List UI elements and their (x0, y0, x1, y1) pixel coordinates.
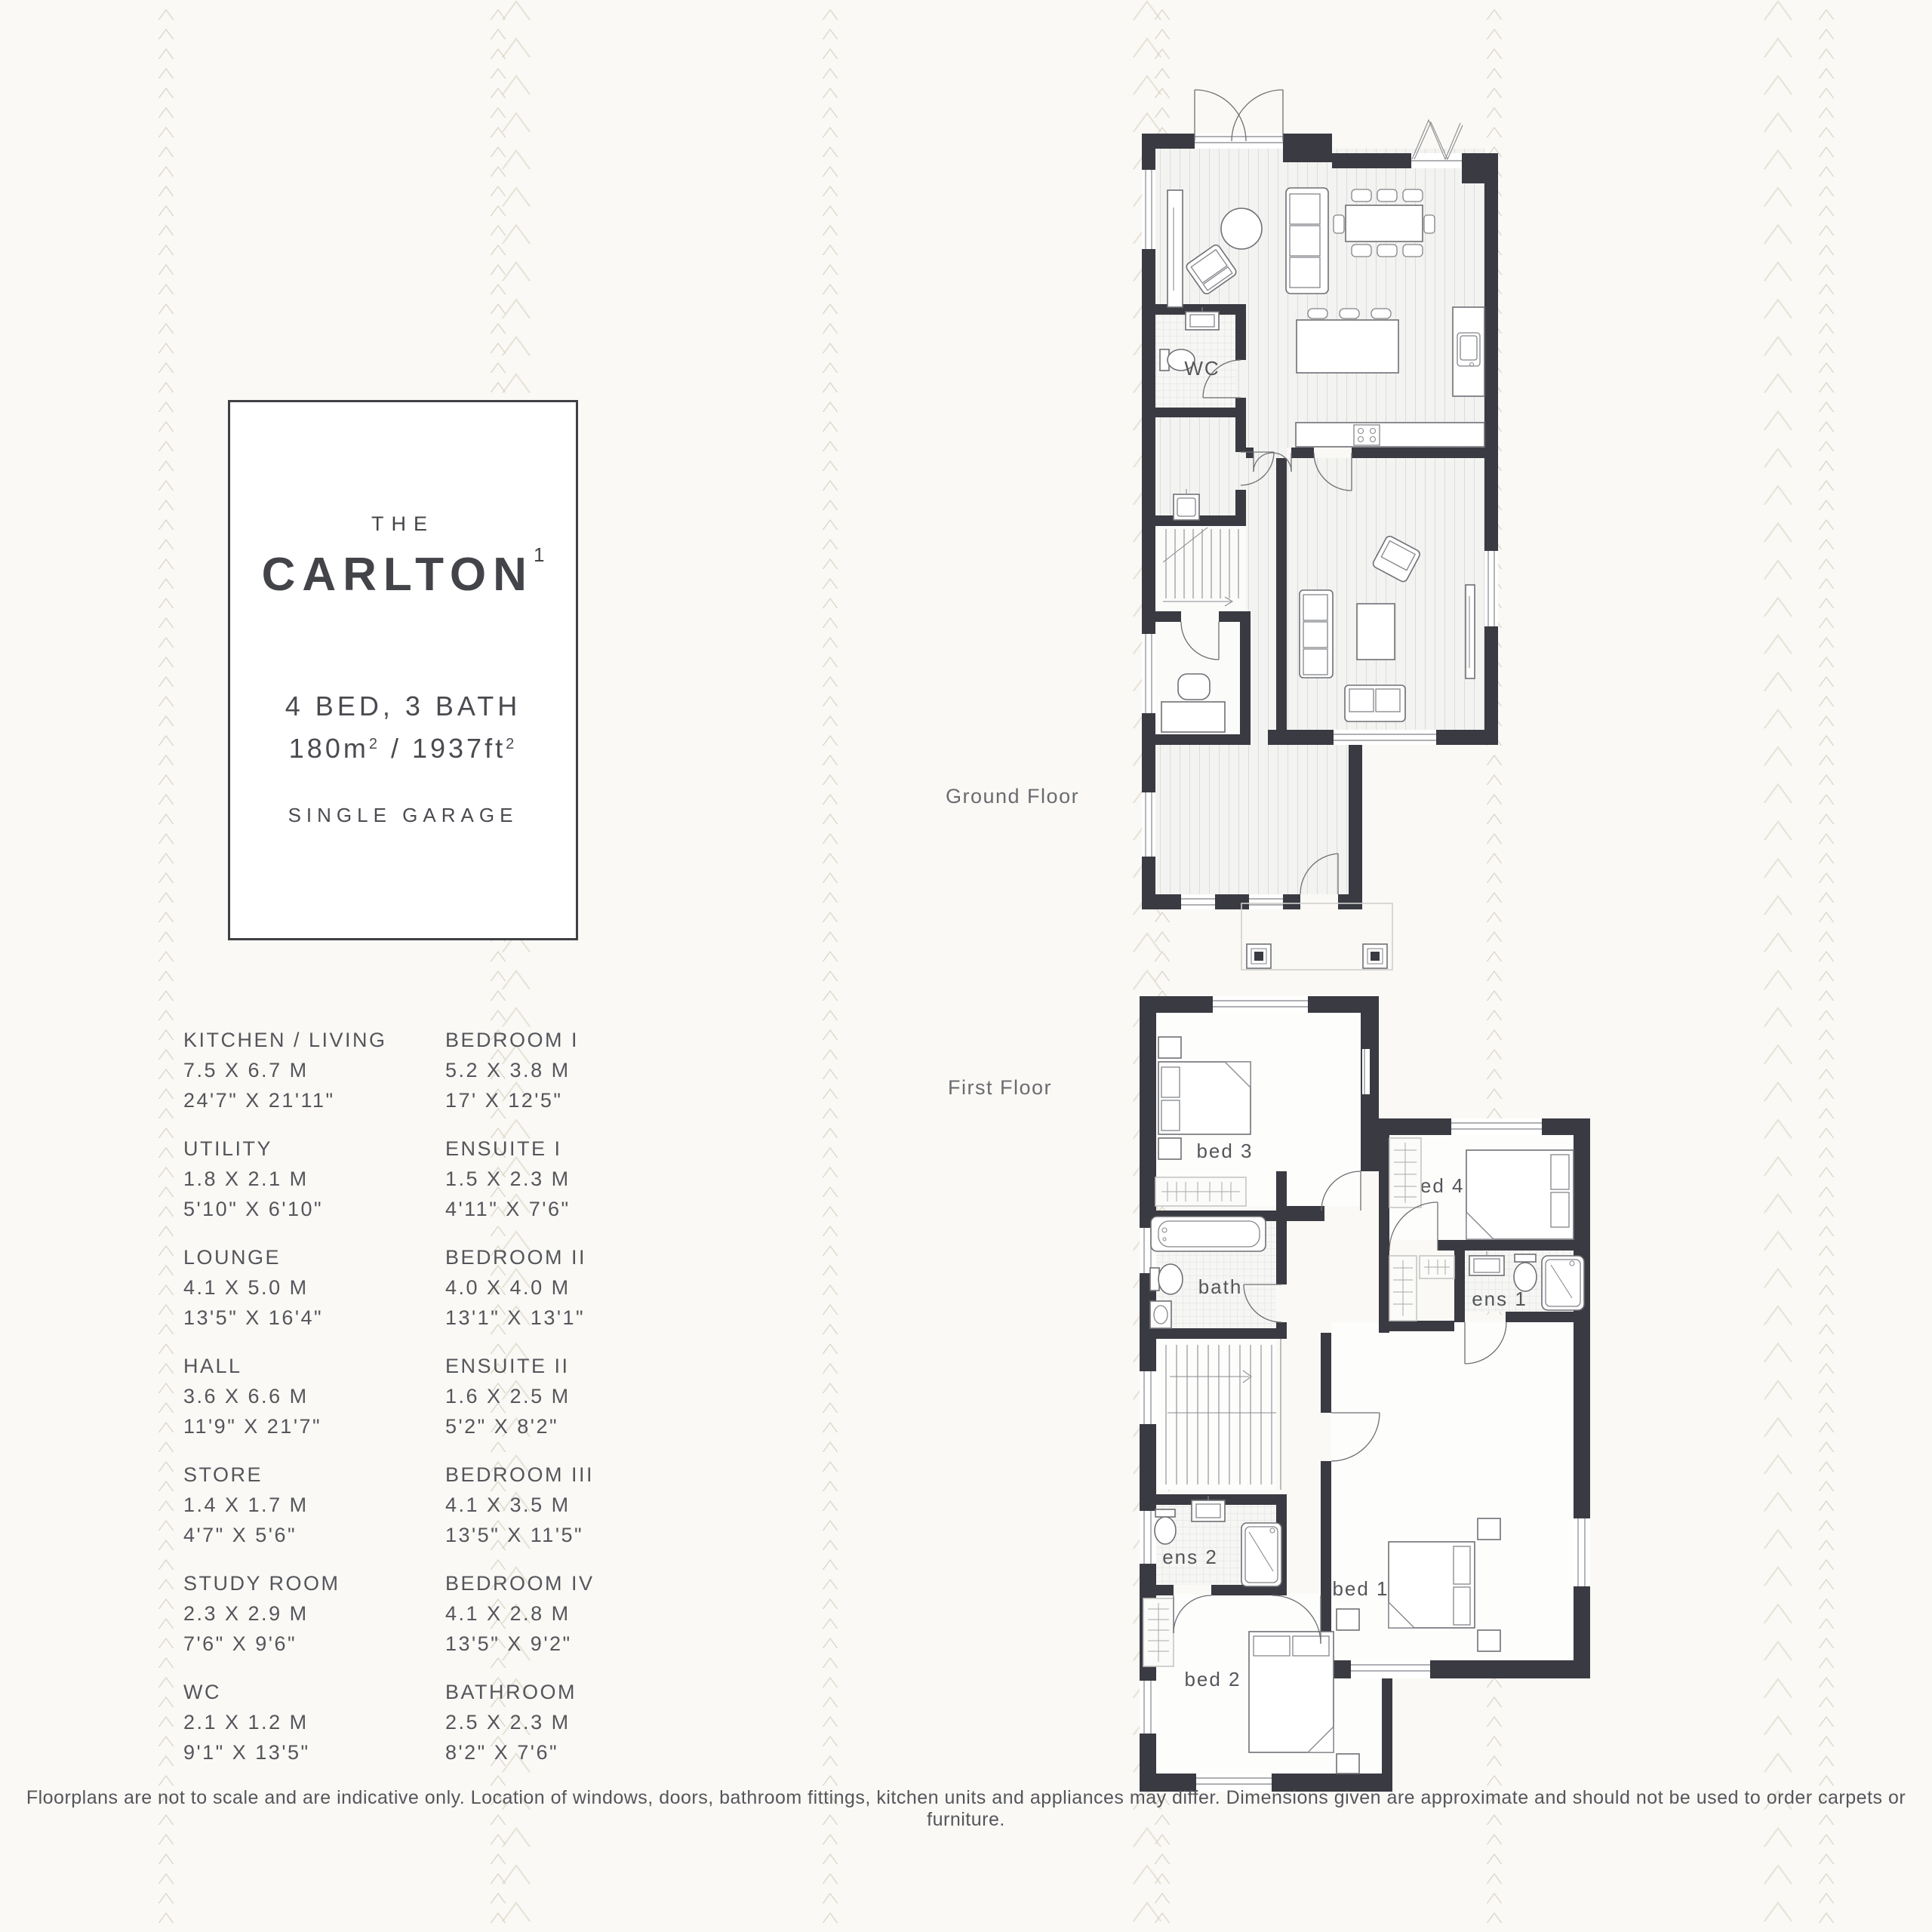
room-metric: 4.1 X 2.8 M (445, 1598, 702, 1629)
wc-room-label: WC (1184, 357, 1220, 380)
room-entry-kitchen-living: KITCHEN / LIVING 7.5 X 6.7 M 24'7" X 21'… (183, 1025, 440, 1115)
room-metric: 4.1 X 5.0 M (183, 1272, 440, 1303)
ens2-room-label: ens 2 (1162, 1546, 1218, 1568)
room-imperial: 24'7" X 21'11" (183, 1085, 440, 1115)
room-name: BEDROOM I (445, 1025, 702, 1055)
room-entry-wc: WC 2.1 X 1.2 M 9'1" X 13'5" (183, 1677, 440, 1767)
room-imperial: 4'7" X 5'6" (183, 1520, 440, 1550)
room-metric: 2.1 X 1.2 M (183, 1707, 440, 1737)
kitchen-island-icon (1297, 309, 1398, 373)
room-entry-lounge: LOUNGE 4.1 X 5.0 M 13'5" X 16'4" (183, 1242, 440, 1333)
house-name: CARLTON1 (230, 543, 576, 601)
room-entry-study: STUDY ROOM 2.3 X 2.9 M 7'6" X 9'6" (183, 1568, 440, 1659)
closet-icon (1389, 1256, 1417, 1321)
room-metric: 2.3 X 2.9 M (183, 1598, 440, 1629)
room-name: WC (183, 1677, 440, 1707)
room-metric: 1.5 X 2.3 M (445, 1164, 702, 1194)
room-entry-bedroom1: BEDROOM I 5.2 X 3.8 M 17' X 12'5" (445, 1025, 702, 1115)
room-metric: 1.6 X 2.5 M (445, 1381, 702, 1411)
sink-icon (1150, 1301, 1171, 1328)
room-name: ENSUITE I (445, 1134, 702, 1164)
room-metric: 3.6 X 6.6 M (183, 1381, 440, 1411)
room-imperial: 4'11" X 7'6" (445, 1194, 702, 1224)
room-imperial: 5'10" X 6'10" (183, 1194, 440, 1224)
room-metric: 1.8 X 2.1 M (183, 1164, 440, 1194)
bathtub-icon (1151, 1217, 1266, 1251)
room-name: BEDROOM IV (445, 1568, 702, 1598)
garage-spec: SINGLE GARAGE (230, 804, 576, 827)
sofa-icon (1286, 188, 1328, 294)
media-unit-icon (1466, 585, 1475, 678)
room-imperial: 8'2" X 7'6" (445, 1737, 702, 1767)
room-name: UTILITY (183, 1134, 440, 1164)
shower-icon (1241, 1523, 1281, 1586)
room-metric: 2.5 X 2.3 M (445, 1707, 702, 1737)
room-imperial: 5'2" X 8'2" (445, 1411, 702, 1441)
bath-room-label: bath (1198, 1275, 1243, 1298)
floorplan-page: THE CARLTON1 4 BED, 3 BATH 180m2 / 1937f… (0, 0, 1932, 1932)
lounge-sofa-icon (1300, 590, 1333, 678)
ground-floor-label: Ground Floor (946, 785, 1079, 808)
room-name: HALL (183, 1351, 440, 1381)
toilet-icon (1150, 1264, 1183, 1294)
room-name: BATHROOM (445, 1677, 702, 1707)
room-entry-store: STORE 1.4 X 1.7 M 4'7" X 5'6" (183, 1460, 440, 1550)
toilet-icon (1155, 1509, 1176, 1544)
room-entry-bedroom2: BEDROOM II 4.0 X 4.0 M 13'1" X 13'1" (445, 1242, 702, 1333)
ground-floor-plan: WC (1136, 64, 1498, 981)
wardrobe-icon (1143, 1598, 1174, 1666)
area-spec: 180m2 / 1937ft2 (230, 733, 576, 764)
room-imperial: 13'1" X 13'1" (445, 1303, 702, 1333)
room-imperial: 13'5" X 16'4" (183, 1303, 440, 1333)
porch-column-icon (1363, 944, 1387, 968)
title-card: THE CARLTON1 4 BED, 3 BATH 180m2 / 1937f… (228, 400, 578, 940)
porch-column-icon (1247, 944, 1271, 968)
room-name: KITCHEN / LIVING (183, 1025, 440, 1055)
room-name: BEDROOM III (445, 1460, 702, 1490)
room-entry-utility: UTILITY 1.8 X 2.1 M 5'10" X 6'10" (183, 1134, 440, 1224)
room-imperial: 13'5" X 9'2" (445, 1629, 702, 1659)
ens1-room-label: ens 1 (1472, 1287, 1527, 1310)
toilet-icon (1514, 1254, 1537, 1291)
wardrobe-icon (1155, 1177, 1246, 1206)
room-entry-hall: HALL 3.6 X 6.6 M 11'9" X 21'7" (183, 1351, 440, 1441)
round-table-icon (1221, 208, 1262, 249)
wardrobe-icon (1389, 1138, 1421, 1207)
room-name: STUDY ROOM (183, 1568, 440, 1598)
room-entry-bathroom: BATHROOM 2.5 X 2.3 M 8'2" X 7'6" (445, 1677, 702, 1767)
room-imperial: 17' X 12'5" (445, 1085, 702, 1115)
bed-bath-spec: 4 BED, 3 BATH (230, 691, 576, 722)
room-entry-ensuite2: ENSUITE II 1.6 X 2.5 M 5'2" X 8'2" (445, 1351, 702, 1441)
hob-icon (1354, 425, 1380, 445)
room-name: BEDROOM II (445, 1242, 702, 1272)
bed2-room-label: bed 2 (1184, 1668, 1241, 1690)
bifold-door-icon (1411, 120, 1463, 168)
room-name: ENSUITE II (445, 1351, 702, 1381)
room-metric: 5.2 X 3.8 M (445, 1055, 702, 1085)
room-metric: 4.1 X 3.5 M (445, 1490, 702, 1520)
room-name: LOUNGE (183, 1242, 440, 1272)
disclaimer-text: Floorplans are not to scale and are indi… (0, 1787, 1932, 1831)
room-metric: 7.5 X 6.7 M (183, 1055, 440, 1085)
room-entry-bedroom3: BEDROOM III 4.1 X 3.5 M 13'5" X 11'5" (445, 1460, 702, 1550)
loveseat-icon (1345, 685, 1405, 721)
room-metric: 1.4 X 1.7 M (183, 1490, 440, 1520)
first-floor-plan: bed 3 bath (1128, 990, 1596, 1805)
room-imperial: 13'5" X 11'5" (445, 1520, 702, 1550)
coffee-table-icon (1357, 604, 1395, 660)
french-doors-icon (1195, 90, 1283, 149)
bed3-room-label: bed 3 (1196, 1140, 1253, 1162)
room-imperial: 11'9" X 21'7" (183, 1411, 440, 1441)
shower-icon (1542, 1256, 1584, 1310)
bed1-room-label: bed 1 (1332, 1577, 1389, 1600)
room-metric: 4.0 X 4.0 M (445, 1272, 702, 1303)
bed-icon (1466, 1150, 1574, 1239)
room-imperial: 7'6" X 9'6" (183, 1629, 440, 1659)
first-floor-label: First Floor (948, 1076, 1052, 1100)
room-imperial: 9'1" X 13'5" (183, 1737, 440, 1767)
room-entry-bedroom4: BEDROOM IV 4.1 X 2.8 M 13'5" X 9'2" (445, 1568, 702, 1659)
title-prefix: THE (230, 512, 576, 536)
room-entry-ensuite1: ENSUITE I 1.5 X 2.3 M 4'11" X 7'6" (445, 1134, 702, 1224)
porch (1241, 903, 1392, 970)
closet-icon (1420, 1256, 1454, 1278)
room-name: STORE (183, 1460, 440, 1490)
house-name-superscript: 1 (534, 543, 544, 566)
tv-unit-icon (1168, 190, 1183, 307)
